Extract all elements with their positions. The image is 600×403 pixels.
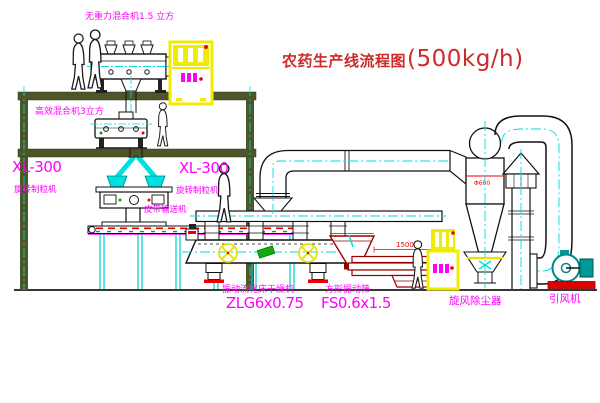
label-gravity-free-mixer: 无重力混合机1.5 立方 (85, 13, 174, 22)
label-fan: 引风机 (549, 294, 581, 305)
label-granulator-right-name: 旋转制粒机 (176, 187, 219, 196)
label-high-efficiency-mixer: 高效混合机3立方 (35, 108, 104, 117)
control-cabinet-1 (170, 42, 212, 104)
title-text: 农药生产线流程图 (282, 50, 406, 71)
person-figure (72, 34, 85, 89)
control-cabinet-2 (428, 229, 458, 289)
label-belt-conveyor: 皮带输送机 (144, 206, 187, 215)
title-capacity: (500kg/h) (407, 46, 524, 72)
y-chute (107, 157, 165, 187)
cyclone-dia-dim: Φ600 (474, 180, 490, 187)
label-granulator-left-name: 旋转制粒机 (14, 186, 57, 195)
person-figure (88, 30, 102, 88)
person-figure (158, 103, 168, 146)
label-cyclone: 旋风除尘器 (449, 296, 502, 307)
diagram-title: 农药生产线流程图 (500kg/h) (282, 46, 524, 72)
screen-width-dim: 1500 (396, 241, 414, 249)
cad-flow-diagram: 1500 350 Φ600 (0, 0, 600, 403)
label-screen-model: FS0.6x1.5 (321, 296, 391, 312)
dryer-feet (204, 264, 328, 284)
induced-draft-fan (548, 250, 595, 289)
label-dryer-model: ZLG6x0.75 (226, 296, 304, 312)
label-granulator-right-model: XL-300 (179, 161, 228, 177)
label-granulator-left-model: XL-300 (12, 160, 61, 176)
